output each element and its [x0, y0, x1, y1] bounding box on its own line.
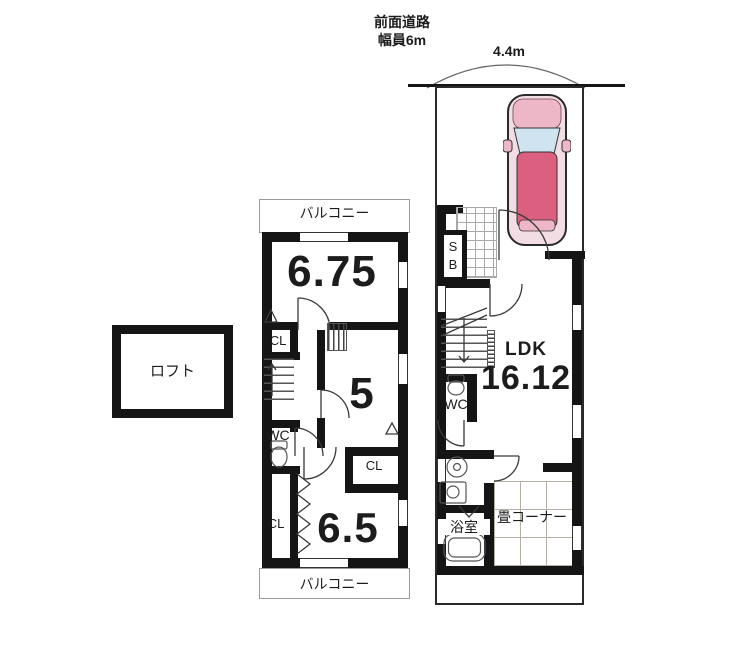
- road-note-line1: 前面道路: [374, 13, 430, 31]
- wall-segment: [345, 484, 400, 493]
- window: [398, 262, 408, 288]
- wall-segment: [345, 447, 408, 456]
- shoe-box-label-s: S: [444, 237, 462, 255]
- window: [572, 405, 582, 438]
- room-5-size: 5: [330, 370, 394, 418]
- wall-segment: [317, 330, 325, 390]
- wall-segment: [543, 463, 574, 472]
- shoe-box-label-b: B: [444, 255, 462, 273]
- room65-door-arc: [304, 447, 336, 479]
- window: [437, 458, 446, 482]
- bath-label: 浴室: [438, 519, 490, 535]
- closet-mid-label: CL: [352, 456, 396, 474]
- window: [300, 558, 348, 568]
- loft-box: ロフト: [112, 325, 233, 418]
- ldk-size: 16.12: [464, 359, 588, 397]
- room-65-size: 6.5: [298, 504, 398, 552]
- window: [398, 500, 408, 526]
- room675-door-arc: [298, 298, 330, 330]
- loft-label: ロフト: [150, 364, 195, 379]
- closet-bottom-label: CL: [258, 514, 294, 532]
- stairs-2f: [264, 358, 294, 400]
- wc-1f-label: WC: [437, 396, 475, 412]
- ldk-label: LDK: [474, 340, 578, 358]
- corner-mark: [386, 423, 398, 434]
- car-top-view: [503, 92, 571, 248]
- room-675-size: 6.75: [272, 246, 392, 298]
- window: [300, 232, 348, 242]
- road-note-line2: 幅員6m: [378, 31, 426, 49]
- window: [437, 286, 446, 312]
- window: [572, 305, 582, 330]
- toilet-2f: [271, 447, 287, 467]
- wall-segment: [437, 566, 584, 575]
- window: [398, 354, 408, 384]
- wall-segment: [437, 505, 493, 513]
- floor-plan-canvas: 前面道路 幅員6m 4.4m バルコニー: [0, 0, 729, 660]
- balcony-top-label: バルコニー: [259, 204, 410, 222]
- wall-segment: [484, 450, 494, 459]
- frontage-dimension-label: 4.4m: [486, 42, 532, 59]
- loft-ladder: [327, 323, 347, 351]
- wall-segment: [317, 418, 325, 448]
- wc-2f-label: WC: [260, 426, 296, 444]
- closet-top-label: CL: [260, 331, 296, 349]
- wall-segment: [290, 466, 298, 558]
- wall-segment: [572, 251, 582, 305]
- tatami-corner-label: 畳コーナー: [490, 509, 574, 525]
- balcony-bottom-label: バルコニー: [259, 575, 410, 593]
- window: [572, 526, 582, 550]
